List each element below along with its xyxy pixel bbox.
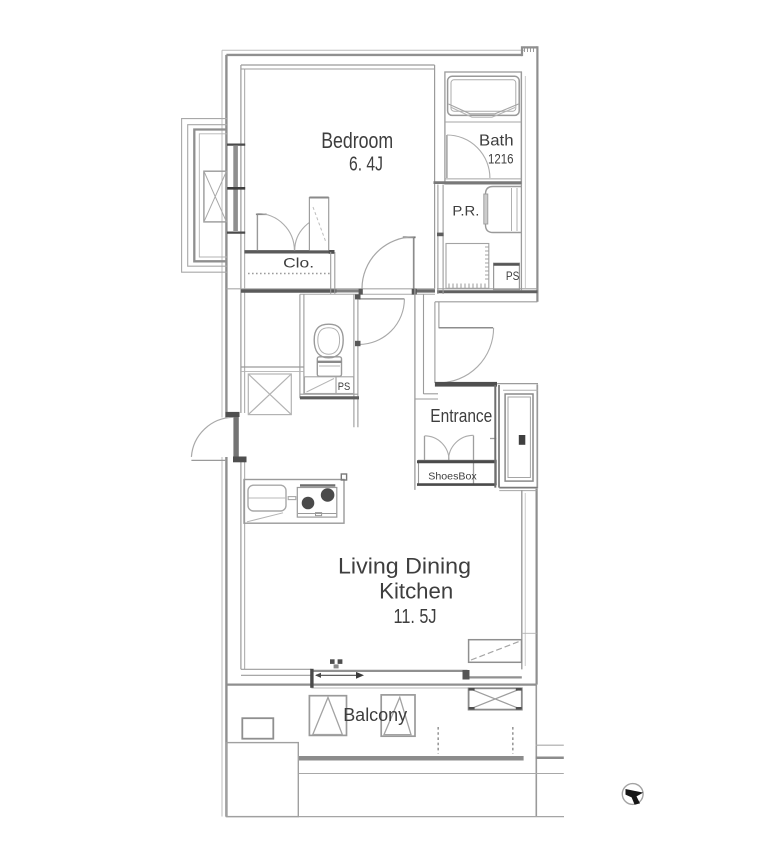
svg-text:PS: PS	[506, 269, 520, 283]
svg-text:Bedroom: Bedroom	[321, 128, 393, 153]
svg-text:6. 4J: 6. 4J	[349, 154, 383, 176]
svg-text:1216: 1216	[488, 151, 514, 167]
svg-text:Living Dining: Living Dining	[338, 554, 471, 579]
svg-text:ShoesBox: ShoesBox	[428, 471, 477, 483]
svg-text:Bath: Bath	[479, 132, 514, 149]
svg-text:P.R.: P.R.	[452, 202, 479, 218]
svg-text:PS: PS	[338, 381, 351, 393]
svg-text:Clo.: Clo.	[283, 255, 314, 271]
svg-text:11. 5J: 11. 5J	[394, 606, 437, 628]
svg-text:Kitchen: Kitchen	[379, 578, 453, 603]
svg-text:Entrance: Entrance	[430, 406, 492, 426]
svg-text:Balcony: Balcony	[343, 704, 408, 725]
